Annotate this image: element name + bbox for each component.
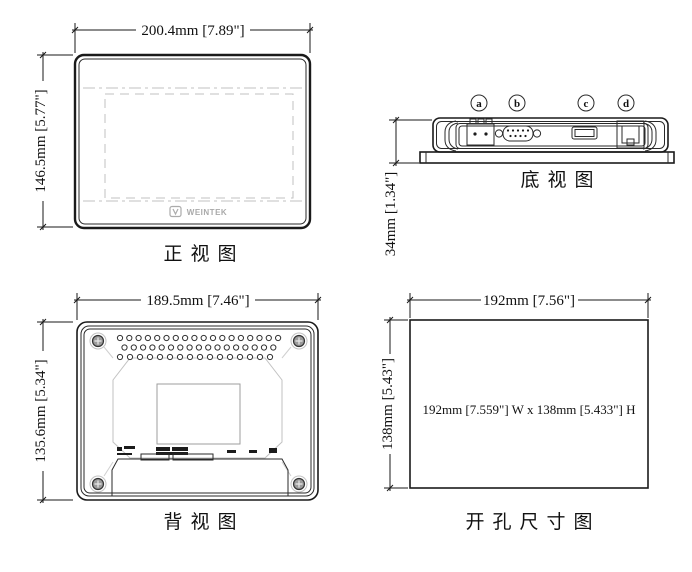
db9-pins bbox=[507, 129, 529, 137]
serial-db9-port bbox=[495, 126, 540, 141]
vent-holes bbox=[117, 335, 280, 359]
port-letter-a: a bbox=[476, 98, 482, 110]
terminal-cover bbox=[112, 454, 288, 496]
bottom-height-dim-text: 34mm [1.34"] bbox=[383, 172, 399, 256]
cutout-width-dimension: 192mm [7.56"] bbox=[407, 292, 651, 318]
screw-bottom-left bbox=[90, 476, 106, 492]
front-view: 200.4mm [7.89"] 146.5mm [5.77"] WEINTEK … bbox=[31, 22, 313, 265]
power-connector bbox=[467, 119, 494, 145]
back-width-dim-text: 189.5mm [7.46"] bbox=[146, 293, 249, 309]
brand-logo-text: WEINTEK bbox=[187, 208, 227, 217]
port-label-b: b bbox=[509, 95, 525, 111]
front-height-dimension: 146.5mm [5.77"] bbox=[31, 52, 73, 230]
front-bezel-inner-line bbox=[79, 59, 306, 224]
port-label-a: a bbox=[471, 95, 487, 111]
cutout-height-dimension: 138mm [5.43"] bbox=[378, 317, 408, 491]
bottom-height-dimension: 34mm [1.34"] bbox=[383, 117, 432, 256]
back-outline-inner bbox=[84, 329, 311, 493]
screw-bottom-right bbox=[291, 476, 307, 492]
port-letter-d: d bbox=[623, 98, 629, 110]
hmi-dimension-drawing: 200.4mm [7.89"] 146.5mm [5.77"] WEINTEK … bbox=[0, 0, 692, 572]
front-width-dim-text: 200.4mm [7.89"] bbox=[141, 23, 244, 39]
front-height-dim-text: 146.5mm [5.77"] bbox=[33, 89, 49, 192]
bottom-bezel-strip bbox=[420, 152, 674, 163]
cutout-view: 192mm [7.56"] 138mm [5.43"] 192mm [7.559… bbox=[378, 292, 651, 533]
cutout-width-dim-text: 192mm [7.56"] bbox=[483, 293, 575, 309]
port-letter-c: c bbox=[584, 98, 589, 110]
back-molding-contour bbox=[113, 358, 282, 458]
screw-top-right bbox=[291, 333, 307, 349]
front-view-label: 正视图 bbox=[163, 243, 244, 265]
brand-logo-glyph bbox=[173, 209, 178, 214]
port-label-d: d bbox=[618, 95, 634, 111]
ethernet-port bbox=[617, 121, 644, 148]
back-view-label: 背视图 bbox=[163, 511, 244, 533]
cutout-view-label: 开孔尺寸图 bbox=[465, 511, 600, 533]
screw-top-left bbox=[90, 333, 106, 349]
front-display-area bbox=[105, 94, 293, 198]
brand-logo: WEINTEK bbox=[170, 207, 227, 218]
bottom-view-label: 底视图 bbox=[520, 169, 601, 191]
front-bezel-outline bbox=[75, 55, 310, 228]
cutout-height-dim-text: 138mm [5.43"] bbox=[380, 358, 396, 450]
back-view: 189.5mm [7.46"] 135.6mm [5.34"] bbox=[31, 292, 321, 533]
back-height-dim-text: 135.6mm [5.34"] bbox=[33, 359, 49, 462]
port-letter-b: b bbox=[514, 98, 520, 110]
vesa-mount-square bbox=[157, 384, 240, 444]
back-molding-corners bbox=[104, 347, 291, 476]
port-label-c: c bbox=[578, 95, 594, 111]
front-width-dimension: 200.4mm [7.89"] bbox=[72, 22, 313, 53]
technical-drawing-page: 200.4mm [7.89"] 146.5mm [5.77"] WEINTEK … bbox=[0, 0, 692, 572]
cutout-size-note: 192mm [7.559"] W x 138mm [5.433"] H bbox=[422, 402, 635, 417]
back-width-dimension: 189.5mm [7.46"] bbox=[74, 292, 321, 320]
bottom-view: a b c d bbox=[383, 95, 674, 256]
back-height-dimension: 135.6mm [5.34"] bbox=[31, 319, 73, 503]
bezel-strip-returns bbox=[426, 152, 668, 163]
back-outline-mid bbox=[81, 326, 314, 496]
usb-port bbox=[572, 127, 597, 139]
